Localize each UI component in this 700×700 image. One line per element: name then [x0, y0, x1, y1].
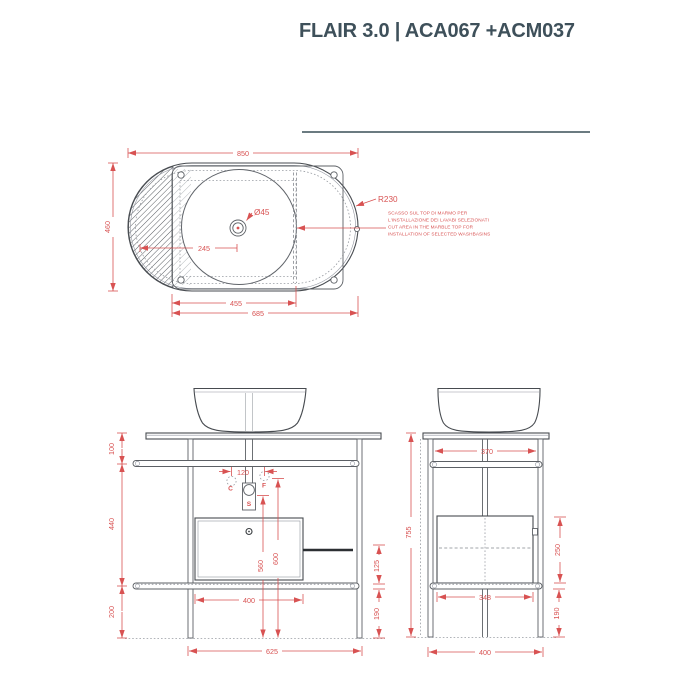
counter-top-side — [423, 433, 549, 439]
technical-drawing: 850 460 R230 Ø45 245 — [0, 0, 700, 700]
dim-120: 120 — [237, 468, 249, 477]
dim-560: 560 — [256, 560, 265, 572]
svg-text:L'INSTALLAZIONE DEI LAVABI SEL: L'INSTALLAZIONE DEI LAVABI SELEZIONATI — [388, 218, 489, 223]
svg-text:CUT AREA IN THE MARBLE TOP FOR: CUT AREA IN THE MARBLE TOP FOR — [388, 225, 474, 230]
dim-245: 245 — [198, 244, 210, 253]
dim-400-front: 400 — [243, 596, 255, 605]
faucet-hole — [230, 220, 246, 236]
cut-area-hatch — [129, 167, 173, 288]
side-leg-back — [538, 439, 543, 637]
drawer-front — [195, 518, 303, 580]
dim-348: 348 — [479, 593, 491, 602]
dim-hole-45: Ø45 — [254, 208, 270, 217]
dim-625: 625 — [266, 647, 278, 656]
washbasin-circle — [182, 170, 297, 285]
top-view: 850 460 R230 Ø45 245 — [103, 148, 490, 318]
label-s: S — [247, 501, 252, 508]
cold-water-point — [227, 476, 236, 485]
side-view: 755 370 250 348 — [404, 389, 566, 658]
dim-370: 370 — [481, 447, 493, 456]
dim-455: 455 — [230, 299, 242, 308]
dim-100: 100 — [107, 443, 116, 455]
towel-bar-front — [133, 461, 359, 467]
dim-600: 600 — [271, 553, 280, 565]
svg-text:SCASSO SUL TOP DI MARMO PER: SCASSO SUL TOP DI MARMO PER — [388, 211, 468, 216]
front-leg-right — [357, 439, 362, 638]
counter-top-front — [146, 433, 381, 439]
cut-area-note: SCASSO SUL TOP DI MARMO PER L'INSTALLAZI… — [388, 211, 490, 237]
dim-685: 685 — [252, 309, 264, 318]
dim-250: 250 — [553, 544, 562, 556]
label-c: C — [228, 486, 233, 493]
spec-sheet-page: FLAIR 3.0 | ACA067 +ACM037 — [0, 0, 700, 700]
cabinet-handle — [533, 529, 538, 536]
dim-440: 440 — [107, 518, 116, 530]
side-leg-front — [428, 439, 433, 637]
front-leg-left — [188, 439, 193, 638]
dim-190-front: 190 — [372, 608, 381, 620]
dim-400-side: 400 — [479, 648, 491, 657]
dim-850: 850 — [237, 149, 249, 158]
label-f: F — [262, 483, 266, 490]
dim-125: 125 — [372, 560, 381, 572]
dim-200: 200 — [107, 606, 116, 618]
dim-190-side: 190 — [552, 608, 561, 620]
washbasin-side — [438, 389, 540, 433]
dim-755: 755 — [404, 527, 413, 539]
dim-r230: R230 — [378, 195, 398, 204]
towel-bar-side — [430, 462, 542, 468]
dim-460: 460 — [103, 221, 112, 233]
svg-text:INSTALLATION OF SELECTED WASHB: INSTALLATION OF SELECTED WASHBASINS — [388, 232, 490, 237]
front-view: C F S 120 100 440 — [107, 389, 385, 657]
washbasin-front — [194, 389, 306, 433]
